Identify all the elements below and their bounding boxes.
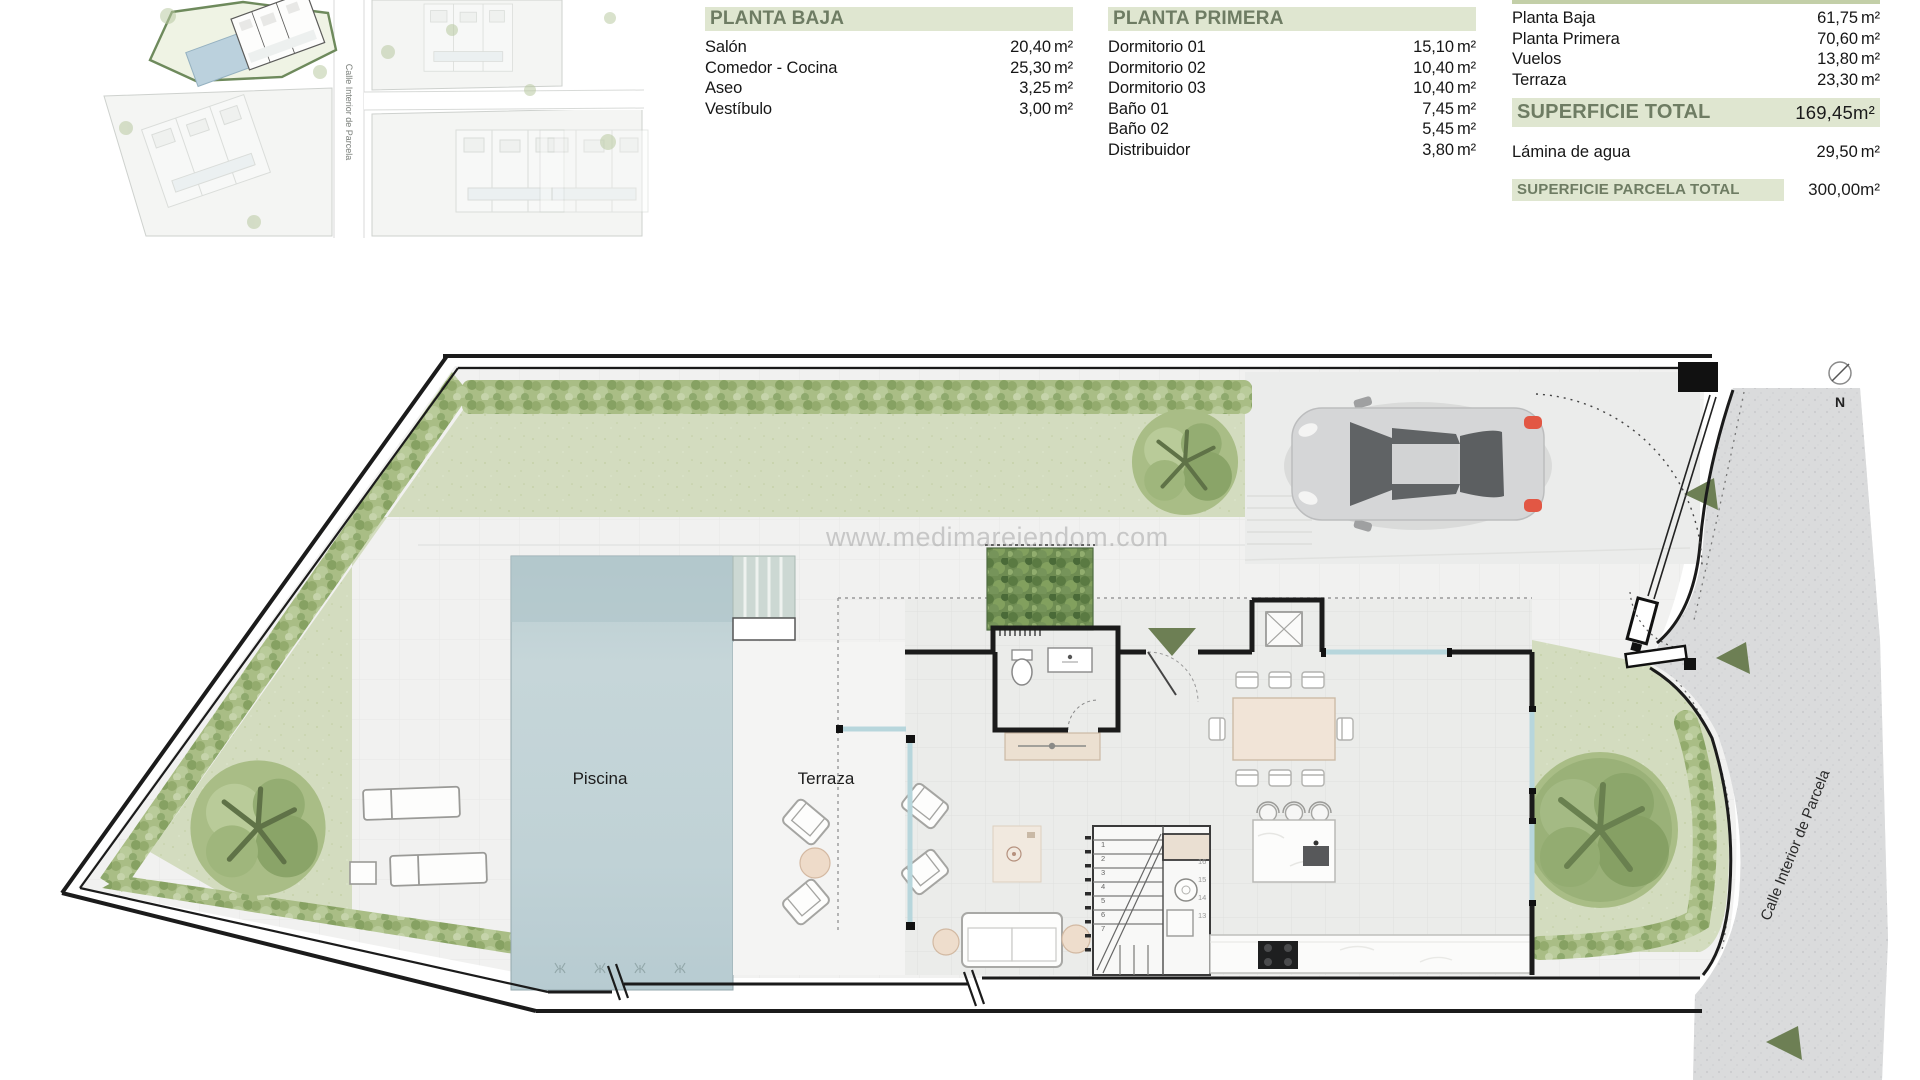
svg-text:4: 4 <box>1101 882 1105 891</box>
car <box>1284 396 1552 533</box>
siteplan-subject-plot <box>150 0 336 88</box>
sofa <box>962 913 1062 967</box>
svg-text:2: 2 <box>1101 854 1105 863</box>
table-row: Baño 02 5,45m² <box>1108 119 1476 140</box>
table-row: Vestíbulo 3,00m² <box>705 99 1073 120</box>
toilet <box>1012 659 1032 685</box>
table-row: Dormitorio 01 15,10m² <box>1108 37 1476 58</box>
svg-text:14: 14 <box>1198 893 1206 902</box>
siteplan-street-label: Calle Interior de Parcela <box>344 64 354 161</box>
svg-text:6: 6 <box>1101 910 1105 919</box>
lamina-de-agua-row: Lámina de agua 29,50m² <box>1512 143 1880 162</box>
terrace-label: Terraza <box>798 769 855 788</box>
tree-left <box>190 760 325 895</box>
kitchen-island <box>1253 802 1335 882</box>
pouf <box>933 929 959 955</box>
table-planta-primera: PLANTA PRIMERA Dormitorio 01 15,10m² Dor… <box>1108 0 1476 160</box>
sink <box>1303 846 1329 866</box>
staircase: 1 2 3 4 5 6 7 16 15 14 13 <box>1085 826 1210 975</box>
planta-baja-header: PLANTA BAJA <box>705 7 1073 31</box>
watermark: www.medimareiendom.com <box>826 522 1126 553</box>
table-row: Planta Baja 61,75m² <box>1512 8 1880 29</box>
table-row: Dormitorio 03 10,40m² <box>1108 78 1476 99</box>
main-floor-plan: Piscina Terraza <box>62 356 1888 1080</box>
svg-text:1: 1 <box>1101 840 1105 849</box>
terrace-side-table <box>800 848 830 878</box>
site-plan-mini: Calle Interior de Parcela <box>104 0 648 238</box>
vertical-garden <box>985 545 1095 630</box>
table-resumen: Planta Baja 61,75m² Planta Primera 70,60… <box>1512 0 1880 201</box>
table-planta-baja: PLANTA BAJA Salón 20,40m² Comedor - Coci… <box>705 0 1073 119</box>
tree-top <box>1132 409 1238 515</box>
svg-text:3: 3 <box>1101 868 1105 877</box>
table-row: Dormitorio 02 10,40m² <box>1108 58 1476 79</box>
cooktop <box>1258 941 1298 969</box>
table-row: Comedor - Cocina 25,30m² <box>705 58 1073 79</box>
pool-label: Piscina <box>573 769 628 788</box>
table-row: Salón 20,40m² <box>705 37 1073 58</box>
hedge-top <box>462 380 1252 414</box>
svg-text:7: 7 <box>1101 924 1105 933</box>
superficie-total: SUPERFICIE TOTAL 169,45m² <box>1512 98 1880 127</box>
table-row: Aseo 3,25m² <box>705 78 1073 99</box>
svg-text:15: 15 <box>1198 875 1206 884</box>
superficie-parcela-total: SUPERFICIE PARCELA TOTAL 300,00m² <box>1512 179 1880 201</box>
table-row: Planta Primera 70,60m² <box>1512 29 1880 50</box>
svg-text:13: 13 <box>1198 911 1206 920</box>
table-row: Baño 01 7,45m² <box>1108 99 1476 120</box>
planta-primera-header: PLANTA PRIMERA <box>1108 7 1476 31</box>
table-row: Vuelos 13,80m² <box>1512 49 1880 70</box>
table-row: Terraza 23,30m² <box>1512 70 1880 91</box>
floor-plan-sheet: Calle Interior de Parcela <box>0 0 1920 1080</box>
svg-text:16: 16 <box>1198 857 1206 866</box>
vanity <box>1048 648 1092 672</box>
light-well <box>1266 612 1302 646</box>
resumen-top-strip <box>1512 0 1880 4</box>
terrace: Terraza <box>733 642 905 975</box>
north-label: N <box>1835 394 1845 410</box>
svg-text:5: 5 <box>1101 896 1105 905</box>
kitchen-counter <box>1210 935 1532 973</box>
table-row: Distribuidor 3,80m² <box>1108 140 1476 161</box>
